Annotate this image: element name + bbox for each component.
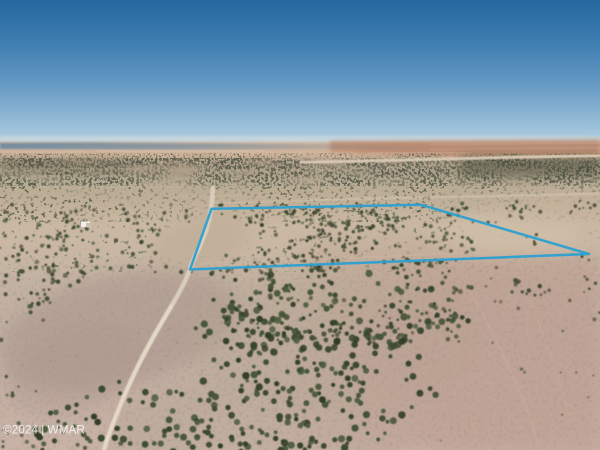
svg-text:©2024 | WMAR: ©2024 | WMAR	[3, 423, 85, 437]
